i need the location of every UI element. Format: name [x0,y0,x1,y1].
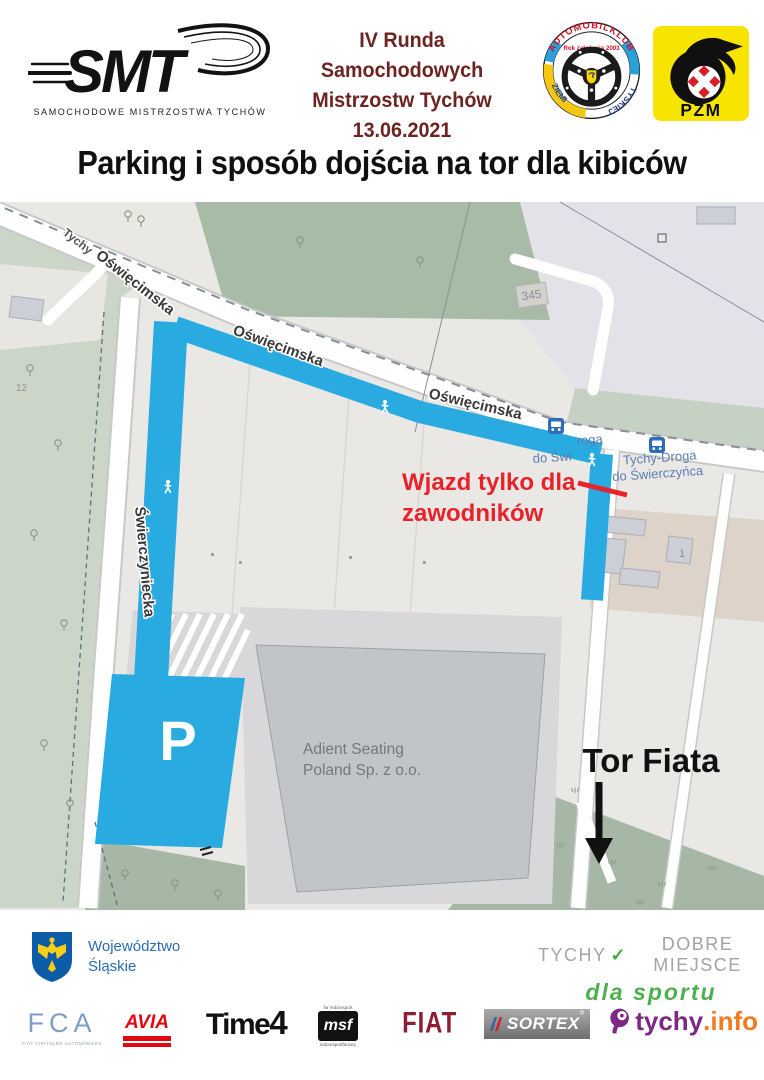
avia-bar-2 [123,1043,171,1047]
avia-logo: AVIA [118,1012,176,1047]
silesia-shield-icon [30,930,74,984]
tychyinfo-logo: tychy.info [608,1003,758,1039]
entry-annotation-line1: Wjazd tylko dla [402,469,576,496]
voivodeship-logo: Województwo Śląskie [30,930,180,984]
tychy-claim-logo: TYCHY ✓ DOBRE MIEJSCE dla sportu [538,934,764,1006]
smt-tagline: SAMOCHODOWE MISTRZOSTWA TYCHÓW [34,107,267,117]
event-date: 13.06.2021 [276,116,528,146]
smt-logo: SMT SAMOCHODOWE MISTRZOSTWA TYCHÓW [28,18,273,122]
sortex-logo: SORTEX ® [484,1009,590,1039]
time4-logo: Time4 [196,1004,296,1042]
check-icon: ✓ [611,945,628,966]
label-1: 1 [679,548,685,560]
fiat-text: FIAT [402,1005,457,1040]
automobilklub-logo: AUTOMOBILKLUB ZIEMI TYSKIEJ Rok założeni… [542,20,641,121]
map-image: P Adient Seating Poland Sp. z o.o. Tychy… [0,202,764,910]
sortex-chevrons-icon [490,1016,503,1032]
msf-top-caption: for indoorsport [314,1005,362,1010]
smt-swoosh-icon [178,25,268,73]
event-title: IV Runda Samochodowych Mistrzostw Tychów… [276,26,528,146]
map-area-green-top [195,202,550,320]
bus-stop-icon-1 [548,418,564,434]
pzm-text: PZM [680,100,721,120]
parking-letter: P [159,709,196,772]
adient-label-2: Poland Sp. z o.o. [303,762,421,779]
event-title-line1: IV Runda Samochodowych [276,26,528,86]
time4-four: 4 [269,1004,286,1041]
poster-page: SMT SAMOCHODOWE MISTRZOSTWA TYCHÓW IV Ru… [0,0,764,1080]
voivodeship-line1: Województwo [88,937,180,957]
fiat-logo: FIAT [402,1005,450,1041]
label-12: 12 [16,383,28,394]
fca-subtext: FIAT CHRYSLER AUTOMOBILES [20,1041,104,1046]
bus-stop-fragment-2: do Świ [532,448,572,466]
page-title: Parking i sposób dojścia na tor dla kibi… [27,144,738,182]
msf-logo: for indoorsport msf indoorsportfactory [314,1005,362,1047]
entry-annotation-line2: zawodników [402,500,544,527]
label-345: 345 [521,287,543,304]
tychyinfo-tld: .info [703,1006,758,1037]
avia-text: AVIA [118,1012,176,1034]
avia-bar-1 [123,1036,171,1041]
claim-dla-sportu: dla sportu [538,979,764,1006]
bus-stop-icon-2 [649,437,665,453]
club-shield-icon [586,70,596,84]
track-label: Tor Fiata [583,742,721,779]
adient-label-1: Adient Seating [303,741,404,758]
msf-subtext: indoorsportfactory [314,1042,362,1047]
fca-text: FCA [20,1008,104,1039]
msf-text: msf [318,1011,358,1041]
event-title-line2: Mistrzostw Tychów [276,86,528,116]
tychyinfo-name: tychy [635,1006,703,1037]
fca-logo: FCA FIAT CHRYSLER AUTOMOBILES [20,1008,104,1046]
bus-stop-fragment-1: roga [576,431,604,448]
claim-dobre-miejsce: DOBRE MIEJSCE [631,934,764,976]
tychyinfo-icon [608,1003,631,1039]
sortex-registered-mark: ® [580,1011,584,1017]
claim-tychy: TYCHY [538,945,607,966]
pzm-logo: PZM [653,26,749,121]
smt-logo-text: SMT [64,38,189,105]
time4-text: Time [206,1008,269,1041]
voivodeship-line2: Śląskie [88,957,180,977]
sortex-text: SORTEX [507,1014,580,1034]
